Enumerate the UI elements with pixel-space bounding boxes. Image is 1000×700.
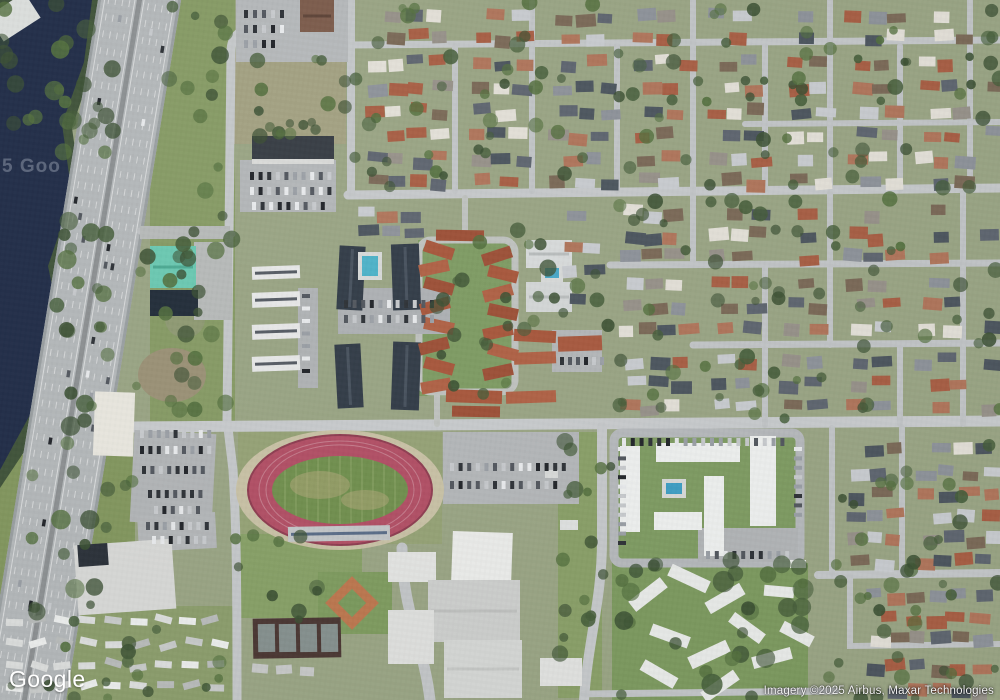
house-roof xyxy=(952,689,971,698)
parked-car xyxy=(710,438,714,446)
parked-car xyxy=(510,463,514,471)
house-roof xyxy=(491,153,511,164)
mobile-home xyxy=(105,641,122,648)
house-roof xyxy=(931,205,946,216)
tree-canopy xyxy=(739,349,755,365)
tree-canopy xyxy=(557,166,572,181)
house-roof xyxy=(508,127,527,139)
parked-car xyxy=(148,490,152,498)
parked-car xyxy=(750,551,754,559)
tree-canopy xyxy=(855,301,866,312)
parked-car xyxy=(244,25,248,33)
house-roof xyxy=(473,102,491,114)
parked-car xyxy=(794,513,802,517)
tree-canopy xyxy=(759,277,772,290)
parked-car xyxy=(715,551,719,559)
tree-canopy xyxy=(792,71,806,85)
parked-car xyxy=(176,466,180,474)
house-roof xyxy=(717,354,735,364)
tree-canopy xyxy=(966,80,976,90)
tree-canopy xyxy=(749,281,758,290)
parked-car xyxy=(361,300,365,308)
tree-canopy xyxy=(903,58,911,66)
tree-canopy xyxy=(669,637,681,649)
parked-car xyxy=(186,536,190,544)
house-roof xyxy=(711,276,729,287)
parked-car xyxy=(319,187,323,195)
house-roof xyxy=(619,326,633,338)
house-roof xyxy=(860,107,879,120)
tree-canopy xyxy=(528,118,543,133)
tree-canopy xyxy=(629,564,643,578)
parked-car xyxy=(302,187,306,195)
tree-canopy xyxy=(399,4,407,12)
house-roof xyxy=(559,105,577,116)
tree-canopy xyxy=(896,242,906,252)
house-roof xyxy=(749,226,766,238)
house-roof xyxy=(973,664,992,674)
house-roof xyxy=(601,109,621,120)
house-roof xyxy=(867,510,883,521)
parked-car xyxy=(280,10,284,18)
parked-car xyxy=(430,315,434,323)
house-roof xyxy=(657,10,676,23)
house-roof xyxy=(807,399,828,411)
parked-car xyxy=(701,438,705,446)
house-roof xyxy=(784,399,802,409)
satellite-map[interactable]: 5 Goo Google Imagery ©2025 Airbus, Maxar… xyxy=(0,0,1000,700)
tree-canopy xyxy=(267,590,278,601)
house-roof xyxy=(929,252,949,264)
house-roof xyxy=(938,352,957,362)
house-roof xyxy=(567,211,587,221)
tree-canopy xyxy=(813,288,825,300)
parked-car xyxy=(467,481,471,489)
tree-canopy xyxy=(174,367,189,382)
house-roof xyxy=(729,32,747,46)
house-roof xyxy=(431,151,447,161)
parked-car xyxy=(162,506,166,514)
parked-car xyxy=(262,40,266,48)
tree-canopy xyxy=(98,226,114,242)
tree-canopy xyxy=(473,144,483,154)
parked-car xyxy=(201,466,205,474)
parked-car xyxy=(202,536,206,544)
house-roof xyxy=(869,11,888,24)
parked-car xyxy=(252,202,256,210)
house-roof xyxy=(723,130,741,141)
building-shed-3 xyxy=(300,667,314,677)
tree-canopy xyxy=(105,123,121,139)
tree-canopy xyxy=(616,689,627,700)
tree-canopy xyxy=(795,94,807,106)
parked-car xyxy=(302,357,310,361)
parked-car xyxy=(190,490,194,498)
tree-canopy xyxy=(158,306,172,320)
parked-car xyxy=(284,187,288,195)
house-roof xyxy=(387,32,406,45)
parked-car xyxy=(754,438,758,446)
tree-canopy xyxy=(72,276,85,289)
house-roof xyxy=(389,83,409,96)
tree-canopy xyxy=(86,600,95,609)
tree-canopy xyxy=(875,477,886,488)
tree-canopy xyxy=(372,36,385,49)
tennis-court xyxy=(300,624,317,652)
house-roof xyxy=(887,13,906,23)
tree-canopy xyxy=(527,315,539,327)
tree-canopy xyxy=(59,322,74,337)
tree-canopy xyxy=(834,658,844,668)
tree-canopy xyxy=(887,246,896,255)
building-school-north xyxy=(388,552,436,582)
tree-canopy xyxy=(188,376,202,390)
parked-car xyxy=(768,551,772,559)
tree-canopy xyxy=(80,510,99,529)
parked-car xyxy=(684,438,688,446)
building-complex-east xyxy=(750,436,776,526)
parked-car xyxy=(295,202,299,210)
house-roof xyxy=(875,559,895,573)
tree-canopy xyxy=(868,265,879,276)
tennis-court xyxy=(258,624,275,652)
house-roof xyxy=(887,593,905,606)
house-roof xyxy=(807,132,823,142)
house-roof xyxy=(966,537,985,550)
tree-canopy xyxy=(479,337,488,346)
tree-canopy xyxy=(559,604,572,617)
tree-canopy xyxy=(647,193,663,209)
house-roof xyxy=(984,467,1000,477)
tree-canopy xyxy=(923,536,937,550)
parked-car xyxy=(207,430,211,438)
tree-canopy xyxy=(167,1,179,13)
tree-canopy xyxy=(367,167,377,177)
tree-canopy xyxy=(424,150,433,159)
tree-canopy xyxy=(753,385,765,397)
tree-canopy xyxy=(700,361,711,372)
tree-canopy xyxy=(986,31,998,43)
house-roof xyxy=(358,224,379,236)
house-roof xyxy=(645,278,663,289)
tree-canopy xyxy=(485,132,494,141)
tree-canopy xyxy=(152,625,161,634)
house-roof xyxy=(591,132,609,141)
parked-car xyxy=(794,485,802,489)
parked-car xyxy=(404,315,408,323)
tree-canopy xyxy=(524,240,534,250)
tree-canopy xyxy=(170,352,183,365)
tree-canopy xyxy=(838,494,847,503)
tree-canopy xyxy=(206,89,218,101)
house-roof xyxy=(972,689,987,700)
building-shed-2 xyxy=(276,664,293,674)
house-roof xyxy=(476,32,491,43)
tree-canopy xyxy=(788,179,798,189)
parked-car xyxy=(657,438,661,446)
mobile-home xyxy=(181,661,198,669)
parked-car xyxy=(152,536,156,544)
parked-car xyxy=(387,300,391,308)
tree-canopy xyxy=(791,225,803,237)
tree-canopy xyxy=(132,382,141,391)
building-gymnasium xyxy=(451,531,513,583)
parked-car xyxy=(502,463,506,471)
tree-canopy xyxy=(26,469,38,481)
parked-car xyxy=(250,172,254,180)
parked-car xyxy=(618,475,626,479)
parked-car xyxy=(171,506,175,514)
parked-car xyxy=(562,463,566,471)
tree-canopy xyxy=(552,645,568,661)
house-roof xyxy=(932,683,951,693)
google-logo[interactable]: Google xyxy=(9,666,86,693)
parked-car xyxy=(772,438,776,446)
tree-canopy xyxy=(887,79,903,95)
tree-canopy xyxy=(502,64,514,76)
house-roof xyxy=(851,324,872,337)
house-roof xyxy=(864,211,879,224)
tree-canopy xyxy=(294,530,308,544)
parked-car xyxy=(404,300,408,308)
tree-canopy xyxy=(680,154,691,165)
house-roof xyxy=(407,82,423,95)
tree-canopy xyxy=(900,143,912,155)
house-roof xyxy=(914,359,932,371)
parked-car xyxy=(205,522,209,530)
house-roof xyxy=(625,231,646,245)
building-ridge xyxy=(431,610,517,613)
house-roof xyxy=(576,80,594,92)
tree-canopy xyxy=(218,25,233,40)
tree-canopy xyxy=(680,245,690,255)
tree-canopy xyxy=(473,235,488,250)
house-roof xyxy=(430,178,446,191)
tree-canopy xyxy=(892,651,904,663)
house-roof xyxy=(575,14,596,28)
tree-canopy xyxy=(877,97,886,106)
tree-canopy xyxy=(595,462,607,474)
tree-canopy xyxy=(437,81,447,91)
house-roof xyxy=(929,278,950,288)
building-office-white xyxy=(93,391,135,456)
tree-canopy xyxy=(202,683,211,692)
house-roof xyxy=(918,488,934,499)
parked-car xyxy=(269,202,273,210)
tree-canopy xyxy=(563,490,572,499)
house-roof xyxy=(746,180,765,193)
parked-car xyxy=(321,202,325,210)
tree-canopy xyxy=(975,111,990,126)
house-roof xyxy=(933,555,951,567)
tree-canopy xyxy=(503,321,514,332)
parked-car xyxy=(319,172,323,180)
tree-canopy xyxy=(88,118,100,130)
building-ridge xyxy=(529,253,569,256)
building-ridge xyxy=(447,668,519,671)
tree-canopy xyxy=(751,297,759,305)
house-roof xyxy=(620,250,641,262)
tree-canopy xyxy=(247,529,259,541)
tree-canopy xyxy=(295,615,303,623)
building-complex-mid xyxy=(704,476,724,556)
tree-canopy xyxy=(101,522,112,533)
house-roof xyxy=(944,132,960,143)
tree-canopy xyxy=(723,552,740,569)
house-roof xyxy=(586,152,600,165)
house-roof xyxy=(983,359,1000,371)
tree-canopy xyxy=(100,482,115,497)
parked-car xyxy=(353,300,357,308)
house-roof xyxy=(404,228,424,238)
tree-canopy xyxy=(23,114,35,126)
house-roof xyxy=(648,375,669,387)
parked-car xyxy=(361,315,365,323)
house-roof xyxy=(474,173,490,186)
tree-canopy xyxy=(448,380,459,391)
parked-car xyxy=(253,10,257,18)
parked-car xyxy=(261,202,265,210)
tree-canopy xyxy=(191,285,205,299)
house-roof xyxy=(850,554,869,566)
parked-car xyxy=(302,319,310,323)
tree-canopy xyxy=(747,3,760,16)
tree-canopy xyxy=(98,145,111,158)
parked-car xyxy=(493,463,497,471)
parked-car xyxy=(179,506,183,514)
house-roof xyxy=(909,659,925,671)
tree-canopy xyxy=(601,319,614,332)
tree-canopy xyxy=(316,55,327,66)
tree-canopy xyxy=(882,191,897,206)
tree-canopy xyxy=(724,193,739,208)
parked-car xyxy=(310,172,314,180)
parked-car xyxy=(759,551,763,559)
house-roof xyxy=(561,61,577,73)
parked-car xyxy=(284,172,288,180)
house-roof xyxy=(725,82,740,93)
parked-car xyxy=(780,438,784,446)
tree-canopy xyxy=(349,152,360,163)
parked-car xyxy=(519,481,523,489)
swimming-pool xyxy=(362,256,378,276)
house-roof xyxy=(597,13,612,23)
parked-car xyxy=(293,172,297,180)
tree-canopy xyxy=(799,47,813,61)
house-roof xyxy=(628,376,647,386)
tree-canopy xyxy=(510,222,526,238)
parked-car xyxy=(640,438,644,446)
tree-canopy xyxy=(61,416,80,435)
house-roof xyxy=(934,29,954,42)
parked-car xyxy=(370,300,374,308)
house-roof xyxy=(787,57,803,68)
tree-canopy xyxy=(556,553,570,567)
tree-canopy xyxy=(439,171,448,180)
tree-canopy xyxy=(660,219,668,227)
house-roof xyxy=(662,83,678,95)
tree-canopy xyxy=(615,611,634,630)
tree-canopy xyxy=(172,402,188,418)
tree-canopy xyxy=(98,108,115,125)
house-roof xyxy=(980,229,999,241)
tree-canopy xyxy=(693,76,703,86)
parked-car xyxy=(302,344,310,348)
tree-canopy xyxy=(652,330,663,341)
tree-canopy xyxy=(628,214,640,226)
tree-canopy xyxy=(955,490,968,503)
parked-car xyxy=(421,315,425,323)
house-roof xyxy=(656,126,674,139)
parked-car xyxy=(648,438,652,446)
house-roof xyxy=(741,54,757,64)
parked-car xyxy=(198,490,202,498)
tree-canopy xyxy=(509,37,525,53)
tree-canopy xyxy=(666,365,681,380)
building-school-east xyxy=(540,658,582,686)
tree-canopy xyxy=(711,293,725,307)
house-roof xyxy=(952,106,971,119)
tree-canopy xyxy=(715,3,727,15)
house-roof xyxy=(815,177,833,190)
house-roof xyxy=(956,34,973,44)
tree-canopy xyxy=(193,109,207,123)
tree-canopy xyxy=(590,292,605,307)
tree-canopy xyxy=(65,579,84,598)
tree-canopy xyxy=(206,70,219,83)
house-roof xyxy=(871,356,892,368)
house-roof xyxy=(735,377,750,388)
parked-car xyxy=(728,438,732,446)
tree-canopy xyxy=(590,269,600,279)
tree-canopy xyxy=(102,677,111,686)
house-roof xyxy=(866,663,885,677)
house-roof xyxy=(678,323,700,335)
parked-car xyxy=(719,438,723,446)
parked-car xyxy=(167,466,171,474)
building-ridge xyxy=(303,15,331,18)
parked-car xyxy=(622,438,626,446)
parked-car xyxy=(576,357,580,365)
tree-canopy xyxy=(64,387,77,400)
house-roof xyxy=(747,102,764,115)
parked-car xyxy=(244,40,248,48)
house-roof xyxy=(586,34,605,47)
parked-car xyxy=(675,438,679,446)
parked-car xyxy=(459,481,463,489)
tree-canopy xyxy=(798,578,808,588)
house-roof xyxy=(662,150,681,161)
parked-car xyxy=(188,522,192,530)
house-roof xyxy=(934,232,949,243)
tree-canopy xyxy=(57,250,76,269)
tree-canopy xyxy=(585,535,598,548)
house-roof xyxy=(924,132,941,142)
tree-canopy xyxy=(212,655,226,669)
house-roof xyxy=(945,612,965,622)
house-roof xyxy=(601,82,617,94)
house-roof xyxy=(385,106,401,117)
house-roof xyxy=(882,129,898,140)
parked-car xyxy=(327,172,331,180)
tree-canopy xyxy=(284,128,296,140)
parked-car xyxy=(618,447,626,451)
tree-canopy xyxy=(800,26,813,39)
building-outbuilding-2 xyxy=(545,470,558,478)
tree-canopy xyxy=(939,580,947,588)
tree-canopy xyxy=(613,91,624,102)
building-shed-1 xyxy=(252,663,269,673)
